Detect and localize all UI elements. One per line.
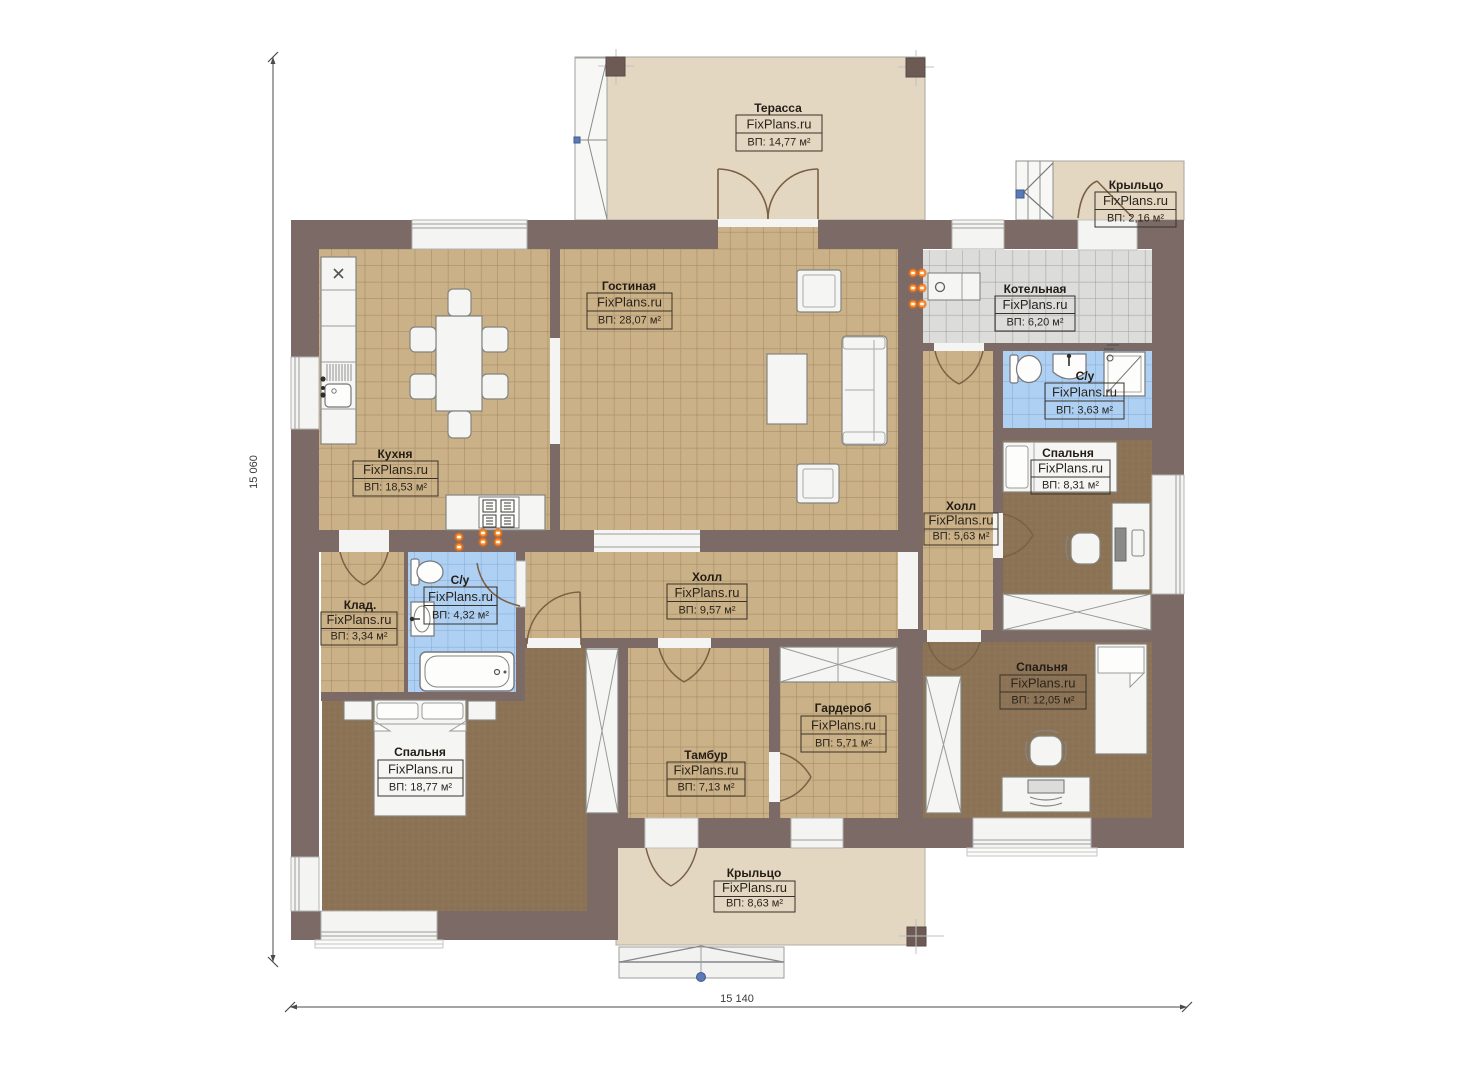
svg-text:FixPlans.ru: FixPlans.ru xyxy=(673,763,738,778)
svg-text:ВП: 4,32 м²: ВП: 4,32 м² xyxy=(432,610,489,622)
svg-text:ВП: 18,53 м²: ВП: 18,53 м² xyxy=(364,482,428,494)
svg-text:FixPlans.ru: FixPlans.ru xyxy=(1002,297,1067,312)
svg-text:С/у: С/у xyxy=(451,573,470,587)
svg-text:ВП: 7,13 м²: ВП: 7,13 м² xyxy=(677,782,734,794)
svg-text:ВП: 9,57 м²: ВП: 9,57 м² xyxy=(678,605,735,617)
svg-text:FixPlans.ru: FixPlans.ru xyxy=(388,762,453,777)
svg-text:FixPlans.ru: FixPlans.ru xyxy=(811,718,876,733)
svg-text:ВП: 14,77 м²: ВП: 14,77 м² xyxy=(747,137,811,149)
svg-text:ВП: 12,05 м²: ВП: 12,05 м² xyxy=(1011,695,1075,707)
svg-text:Гардероб: Гардероб xyxy=(815,701,872,715)
svg-text:ВП: 5,63 м²: ВП: 5,63 м² xyxy=(932,531,989,543)
svg-text:ВП: 3,63 м²: ВП: 3,63 м² xyxy=(1056,405,1113,417)
svg-text:FixPlans.ru: FixPlans.ru xyxy=(746,117,811,132)
svg-text:Гостиная: Гостиная xyxy=(602,279,656,293)
svg-text:Спальня: Спальня xyxy=(394,745,446,759)
svg-text:Котельная: Котельная xyxy=(1004,282,1067,296)
svg-text:ВП: 18,77 м²: ВП: 18,77 м² xyxy=(389,782,453,794)
svg-text:С/у: С/у xyxy=(1076,369,1095,383)
svg-text:Крыльцо: Крыльцо xyxy=(1109,178,1164,192)
svg-text:15 060: 15 060 xyxy=(248,455,260,489)
svg-text:ВП: 28,07 м²: ВП: 28,07 м² xyxy=(598,315,662,327)
svg-text:Крыльцо: Крыльцо xyxy=(727,866,782,880)
svg-text:FixPlans.ru: FixPlans.ru xyxy=(363,462,428,477)
svg-text:Холл: Холл xyxy=(946,499,976,513)
svg-text:Спальня: Спальня xyxy=(1042,446,1094,460)
svg-text:FixPlans.ru: FixPlans.ru xyxy=(1103,193,1168,208)
svg-text:Тамбур: Тамбур xyxy=(684,748,728,762)
svg-text:FixPlans.ru: FixPlans.ru xyxy=(674,585,739,600)
svg-text:ВП: 5,71 м²: ВП: 5,71 м² xyxy=(815,738,872,750)
svg-text:ВП: 2,16 м²: ВП: 2,16 м² xyxy=(1107,213,1164,225)
svg-text:ВП: 8,31 м²: ВП: 8,31 м² xyxy=(1042,480,1099,492)
svg-text:Холл: Холл xyxy=(692,570,722,584)
svg-text:ВП: 6,20 м²: ВП: 6,20 м² xyxy=(1006,317,1063,329)
svg-text:FixPlans.ru: FixPlans.ru xyxy=(326,612,391,627)
svg-text:Кухня: Кухня xyxy=(377,447,412,461)
svg-text:FixPlans.ru: FixPlans.ru xyxy=(1038,461,1103,476)
svg-text:FixPlans.ru: FixPlans.ru xyxy=(928,513,993,528)
svg-text:ВП: 8,63 м²: ВП: 8,63 м² xyxy=(726,898,783,910)
svg-text:Клад.: Клад. xyxy=(344,598,377,612)
svg-text:Терасса: Терасса xyxy=(754,101,802,115)
svg-text:FixPlans.ru: FixPlans.ru xyxy=(428,589,493,604)
svg-text:FixPlans.ru: FixPlans.ru xyxy=(1010,676,1075,691)
svg-text:FixPlans.ru: FixPlans.ru xyxy=(597,295,662,310)
svg-text:ВП: 3,34 м²: ВП: 3,34 м² xyxy=(330,631,387,643)
svg-text:FixPlans.ru: FixPlans.ru xyxy=(1052,385,1117,400)
svg-text:Спальня: Спальня xyxy=(1016,660,1068,674)
svg-text:FixPlans.ru: FixPlans.ru xyxy=(722,880,787,895)
svg-text:15 140: 15 140 xyxy=(720,993,754,1005)
